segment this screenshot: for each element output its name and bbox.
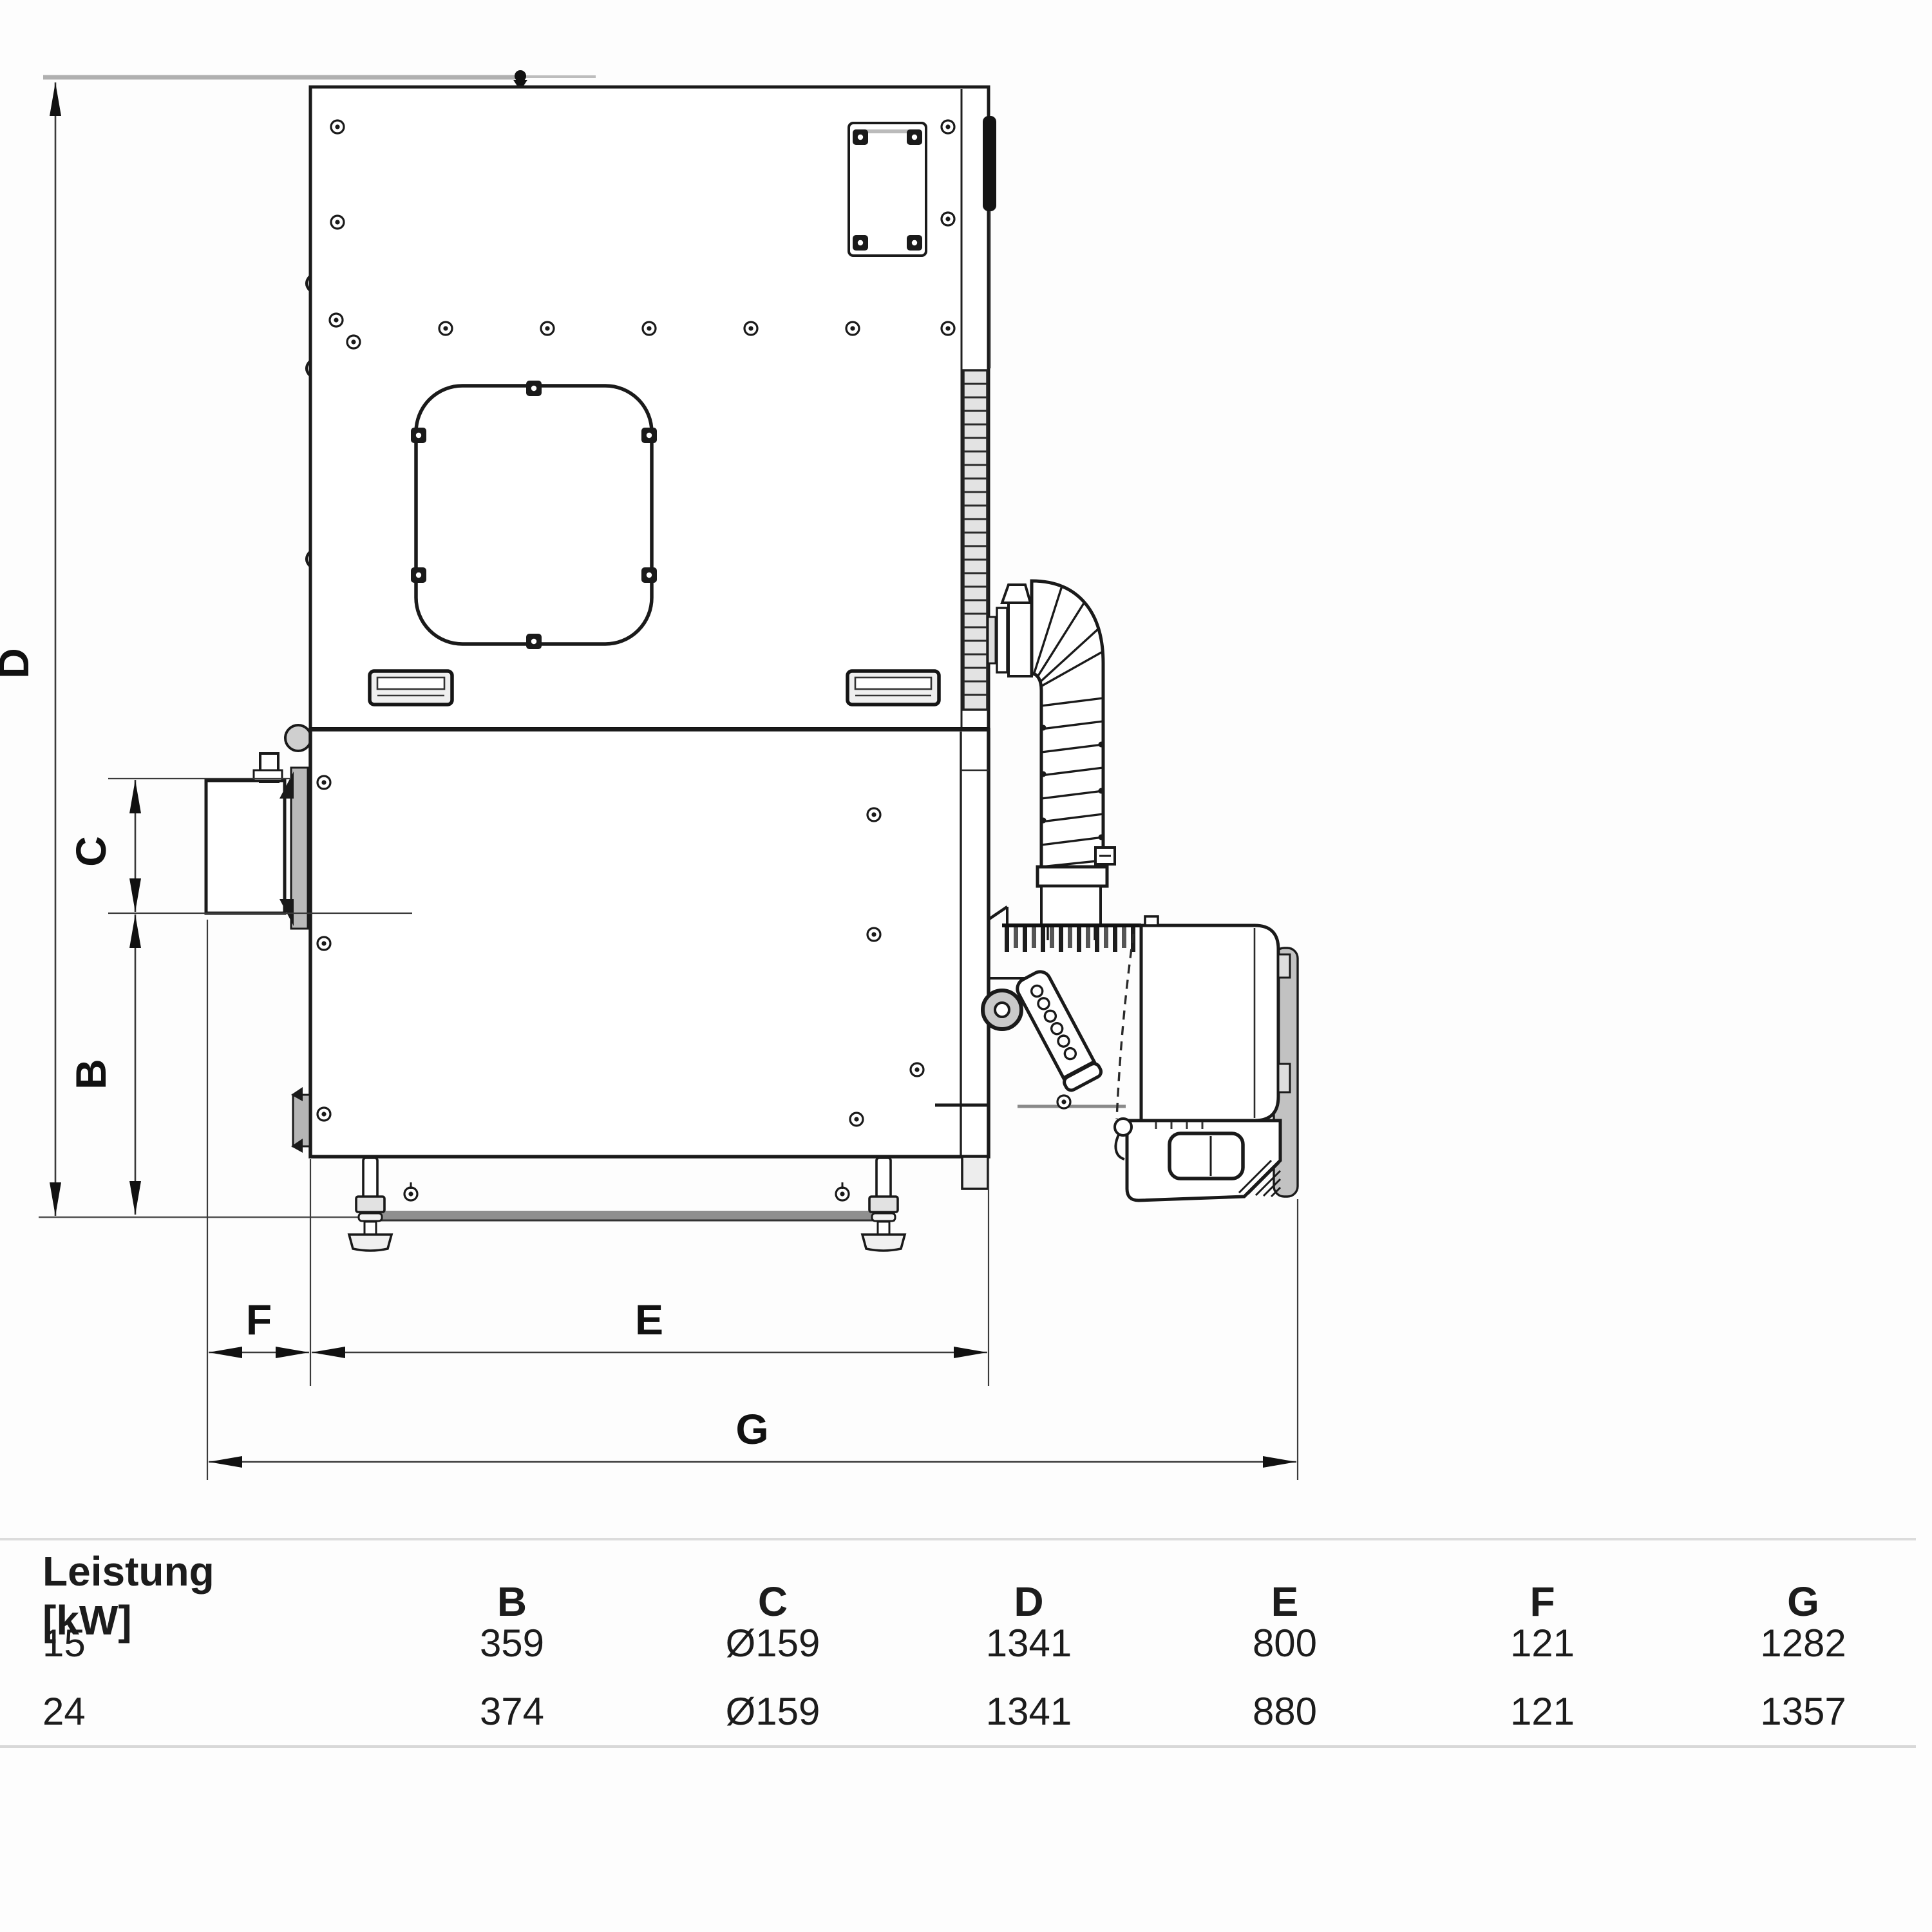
table-cell: Ø159 [663, 1609, 882, 1677]
base-frame [349, 1157, 988, 1251]
dim-label-f: F [246, 1296, 272, 1343]
table-cell: 121 [1394, 1609, 1690, 1677]
flue-outlet [206, 753, 308, 929]
dim-label-c: C [67, 836, 115, 867]
lower-body-panel [310, 730, 989, 1157]
seal-strip [983, 116, 996, 211]
table-cell: 1282 [1690, 1609, 1916, 1677]
burner-housing [1141, 925, 1278, 1121]
table-cell: 121 [1394, 1677, 1690, 1745]
page: D [0, 0, 1932, 1932]
table-cell: 800 [1175, 1609, 1394, 1677]
dimension-b: B [67, 914, 141, 1215]
dimensions-table: Leistung[kW] B C D E F G 15 359 Ø159 134… [0, 1538, 1916, 1748]
table-cell-power: 15 [43, 1609, 361, 1677]
dimension-g: G [209, 1405, 1296, 1468]
right-foot-bracket [962, 1157, 988, 1189]
dim-label-d: D [0, 648, 37, 679]
burner-mount [983, 907, 1141, 1108]
base-bar [361, 1211, 895, 1220]
dim-label-g: G [735, 1405, 768, 1453]
adjustable-foot-right [862, 1158, 905, 1251]
table-cell: 374 [361, 1677, 663, 1745]
hex-cap [1002, 585, 1030, 603]
electrical-panel [849, 123, 926, 256]
ribbed-strip [963, 370, 987, 710]
dimension-f: F [209, 1296, 309, 1358]
table-cell: 359 [361, 1609, 663, 1677]
dim-label-b: B [67, 1059, 115, 1090]
hose-connector-stub [988, 585, 1032, 676]
ash-tray [1115, 1119, 1280, 1200]
flue-top-fitting [254, 753, 282, 782]
handle-slot-left [370, 671, 452, 705]
boiler-upper-body [307, 87, 996, 730]
table-cell: Ø159 [663, 1677, 882, 1745]
boiler-lower-body [291, 730, 989, 1157]
table-cell: 1341 [882, 1609, 1175, 1677]
seam-knob [285, 725, 311, 751]
flue-pipe-stub [206, 781, 285, 913]
dimension-e: E [312, 1296, 987, 1358]
frame-bolts [404, 1182, 849, 1200]
pellet-hose [988, 581, 1115, 940]
table-cell-power: 24 [43, 1677, 361, 1745]
table-cell: 1357 [1690, 1677, 1916, 1745]
table-cell: 880 [1175, 1677, 1394, 1745]
table-cell: 1341 [882, 1677, 1175, 1745]
adjustable-foot-left [349, 1158, 392, 1251]
tray-latch [1115, 1119, 1132, 1135]
technical-drawing: D [0, 0, 1932, 1520]
handle-slot-right [848, 671, 939, 705]
mount-comb [1005, 927, 1135, 952]
inspection-window [411, 381, 657, 649]
lower-left-bracket [291, 1087, 310, 1153]
burner-handle [983, 967, 1103, 1092]
pellet-chute-hidden-line [1117, 934, 1133, 1119]
dim-label-e: E [635, 1296, 663, 1343]
